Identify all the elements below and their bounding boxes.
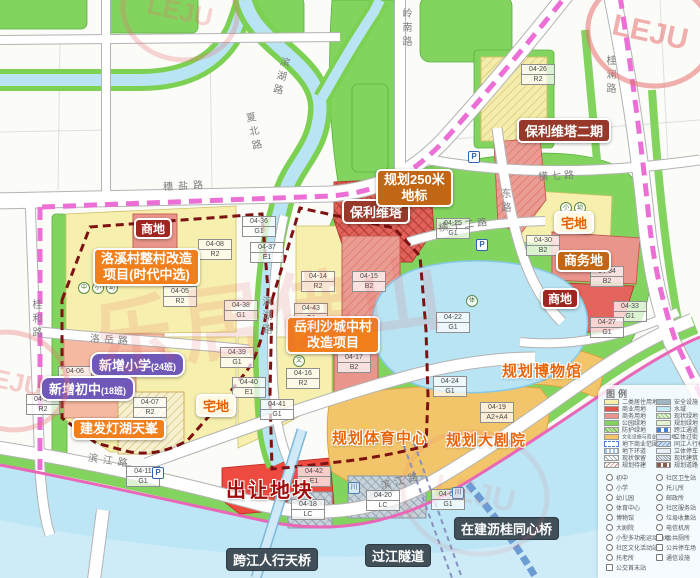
parking-icon: P: [468, 151, 480, 163]
legend-poi-icon: [656, 554, 663, 561]
label-yuelisha-line1: 岳利沙城中村: [294, 319, 372, 335]
legend-poi: 幼儿园: [606, 493, 634, 502]
legend-poi: 邮政所: [656, 493, 684, 502]
parcel-04-07: 04-07R2: [133, 397, 167, 418]
road-label-suiyan: 穗盐路: [163, 176, 209, 193]
parcel-04-27: 04-27G1: [590, 317, 624, 338]
school-icon: 中: [78, 282, 90, 294]
legend-poi-icon: [656, 514, 663, 521]
parcel-04-30: 04-30B2: [526, 235, 560, 256]
parcel-04-15: 04-15B2: [352, 271, 386, 292]
legend-poi-icon: [606, 564, 613, 571]
legend-poi-icon: [606, 534, 613, 541]
sports-icon: 体: [466, 295, 478, 307]
label-commercial-left: 商地: [134, 218, 172, 239]
legend-poi-icon: [606, 494, 613, 501]
planning-map: 穗盐路 岭南路 桂澜路 滨湖路 夏北路 滨湖路 洛岳路 桂和路 横七路 横十二路…: [0, 0, 700, 578]
label-residential-left: 宅地: [196, 394, 236, 417]
parking-icon: P: [476, 239, 488, 251]
legend-poi-icon: [656, 544, 663, 551]
legend-poi: 垃圾收集站: [656, 513, 696, 522]
label-business-land: 商务地: [556, 250, 611, 272]
label-poly-vita2: 保利维塔二期: [517, 118, 611, 143]
legend-poi-icon: [606, 504, 613, 511]
label-landmark-line2: 地标: [384, 188, 445, 204]
legend-item: 规划待建: [604, 461, 646, 468]
road-label-dong: 东路: [497, 188, 512, 216]
legend-poi-icon: [656, 494, 663, 501]
legend-poi: 托老所: [606, 553, 634, 562]
legend: 图例 二类居住用地 商业用地 商务用地 公园绿地 防护绿地 文化设施与商业混合用…: [598, 385, 700, 578]
legend-poi-icon: [656, 484, 663, 491]
bridge-icon: 川: [348, 482, 360, 494]
legend-poi-icon: [606, 554, 613, 561]
label-pedestrian-bridge: 跨江人行天桥: [226, 548, 318, 571]
legend-poi: 公共厕所: [656, 533, 690, 542]
label-primary-classes: (24班): [151, 362, 176, 372]
parcel-04-17: 04-17B2: [337, 352, 371, 373]
label-river-tunnel: 过江隧道: [365, 544, 431, 567]
legend-poi: 初中: [606, 473, 628, 482]
parcel-04-08: 04-08R2: [198, 239, 232, 260]
label-sports-center: 规划体育中心: [332, 427, 428, 448]
label-jianfa-project: 建发灯湖天峯: [72, 418, 166, 440]
label-luoxi-line2: 项目(时代中选): [101, 267, 192, 283]
legend-poi-icon: [606, 524, 613, 531]
legend-poi: 小学: [606, 483, 628, 492]
legend-poi-icon: [656, 504, 663, 511]
label-middle-text: 新增初中: [49, 382, 101, 397]
legend-poi: 大剧院: [606, 523, 634, 532]
label-yuelisha-line2: 改造项目: [294, 335, 372, 351]
road-label-heng7: 横七路: [538, 166, 578, 183]
legend-poi-icon: [656, 524, 663, 531]
legend-poi: 社区卫生站: [656, 473, 696, 482]
legend-poi: 电信机房: [656, 523, 690, 532]
legend-poi: 博物馆: [606, 513, 634, 522]
legend-poi-icon: [656, 534, 663, 541]
label-museum: 规划博物馆: [502, 360, 582, 381]
culture-icon: 文: [293, 355, 305, 367]
legend-poi: 公交首末站: [606, 563, 646, 572]
legend-poi: 社区服务站: [656, 503, 696, 512]
legend-poi-icon: [606, 474, 613, 481]
road-label-lingnan: 岭南路: [398, 8, 413, 50]
label-tongxin-bridge: 在建沥桂同心桥: [454, 517, 559, 540]
label-new-primary-school: 新增小学(24班): [90, 352, 185, 377]
parcel-04-24: 04-24G1: [433, 376, 467, 397]
legend-poi-icon: [606, 544, 613, 551]
road-label-binhu-mid: 滨湖路: [258, 296, 273, 338]
label-grand-theater: 规划大剧院: [446, 429, 526, 450]
label-residential-right: 宅地: [554, 211, 594, 234]
parcel-04-37: 04-37E1: [250, 242, 284, 263]
parcel-04-40: 04-40E1: [232, 377, 266, 398]
label-luoxi-line1: 洛溪村整村改造: [101, 251, 192, 267]
parcel-04-38: 04-38G1: [224, 300, 258, 321]
parcel-04-39: 04-39G1: [220, 347, 254, 368]
legend-poi: 体育中心: [606, 503, 640, 512]
road-label-guilan: 桂澜路: [602, 55, 617, 97]
parcel-04-26: 04-26R2: [521, 64, 555, 85]
parcel-04-36: 04-36G1: [242, 216, 276, 237]
parcel-04-14: 04-14R2: [301, 271, 335, 292]
parking-icon: P: [152, 467, 164, 479]
label-luoxi-project: 洛溪村整村改造 项目(时代中选): [93, 248, 200, 286]
legend-poi-icon: [656, 474, 663, 481]
legend-item: 规划道路: [656, 461, 698, 468]
legend-poi-icon: [606, 484, 613, 491]
parcel-04-20: 04-20LC: [366, 490, 400, 511]
parcel-04-16: 04-16R2: [286, 368, 320, 389]
label-commercial-right: 商地: [541, 288, 579, 309]
parcel-04-05: 04-05R2: [163, 286, 197, 307]
label-yuelisha-project: 岳利沙城中村 改造项目: [286, 316, 380, 354]
legend-poi: 通信设施: [656, 553, 690, 562]
label-new-middle-school: 新增初中(18班): [40, 376, 135, 401]
label-primary-text: 新增小学: [99, 358, 151, 373]
road-label-guihe: 桂和路: [28, 299, 43, 341]
legend-poi: 托儿所: [656, 483, 684, 492]
label-landmark-line1: 规划250米: [384, 172, 445, 188]
parcel-04-41: 04-41G1: [260, 399, 294, 420]
label-250m-landmark: 规划250米 地标: [376, 169, 453, 207]
parcel-04-22: 04-22G1: [436, 312, 470, 333]
legend-poi-icon: [606, 514, 613, 521]
legend-poi: 公共停车场: [656, 543, 696, 552]
legend-poi: 社区文化活动站: [606, 543, 658, 552]
bridge-icon: 川: [452, 487, 464, 499]
road-label-luoyue: 洛岳路: [90, 330, 133, 348]
parcel-04-19: 04-19A2+A4: [480, 402, 514, 423]
label-parcel-for-sale: 出让地块: [226, 474, 314, 503]
label-middle-classes: (18班): [101, 386, 126, 396]
